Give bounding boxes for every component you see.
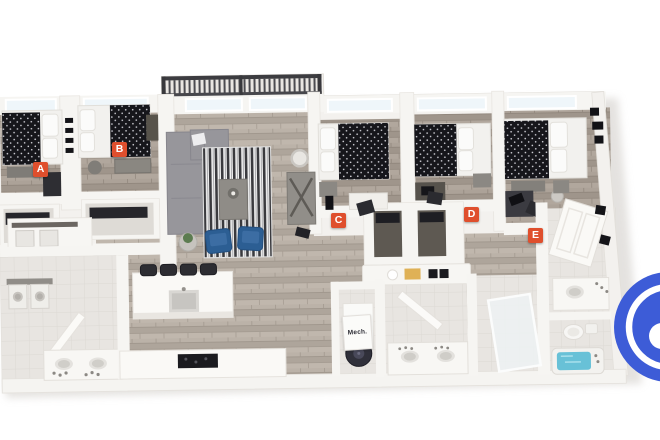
mech-closet-sign: Mech. bbox=[342, 314, 373, 351]
vanity-center bbox=[388, 342, 468, 375]
bed-d bbox=[414, 123, 491, 176]
vanity-left bbox=[44, 349, 122, 380]
console-table bbox=[287, 172, 316, 224]
bed-a bbox=[2, 110, 63, 165]
bathtub bbox=[552, 348, 604, 375]
room-label-e: E bbox=[528, 228, 543, 243]
coffee-table bbox=[219, 179, 248, 219]
round-mirror bbox=[292, 150, 308, 166]
floor-plan-3d-render bbox=[0, 0, 660, 440]
room-label-a: A bbox=[33, 162, 48, 177]
floor-plan-screenshot: A B C D E Mech. bbox=[0, 0, 660, 440]
kitchen-counter bbox=[120, 349, 286, 380]
nightstand-c bbox=[319, 182, 337, 197]
dresser-b bbox=[115, 159, 151, 174]
closets-c-d bbox=[363, 202, 464, 266]
room-label-c: C bbox=[331, 213, 346, 228]
bed-c bbox=[318, 123, 389, 180]
bed-e bbox=[504, 118, 587, 179]
room-label-b: B bbox=[112, 142, 127, 157]
room-label-d: D bbox=[464, 207, 479, 222]
wall-c-d bbox=[400, 93, 416, 217]
closet-b bbox=[81, 199, 160, 240]
vanity-right bbox=[553, 277, 609, 310]
kitchen-island bbox=[132, 271, 233, 319]
nightstand-d bbox=[473, 173, 491, 187]
cooktop bbox=[178, 354, 218, 369]
